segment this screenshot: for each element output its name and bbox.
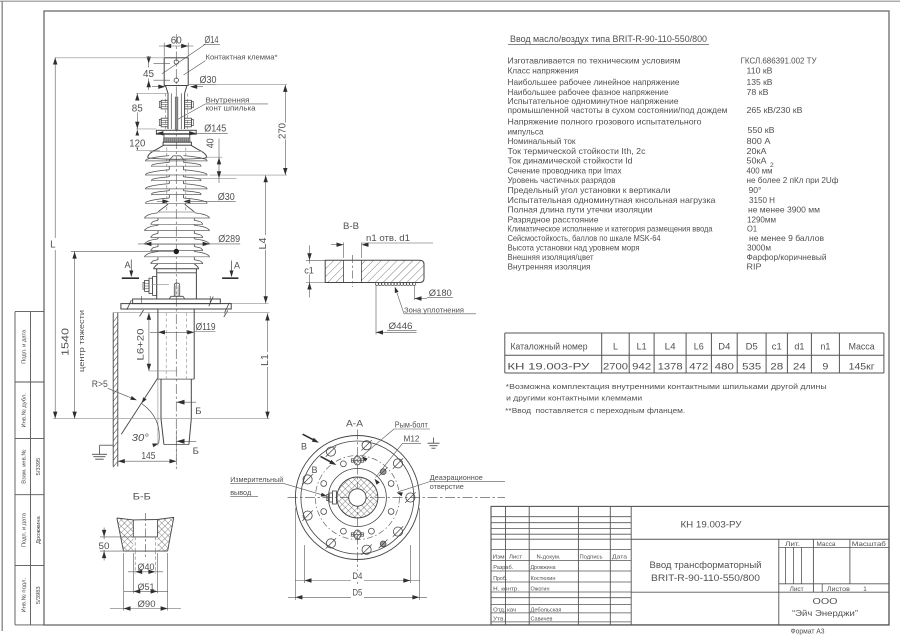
svg-text:Н. контр.: Н. контр. bbox=[493, 586, 519, 592]
svg-text:Разрядное расстояние: Разрядное расстояние bbox=[508, 215, 599, 224]
svg-text:120: 120 bbox=[129, 139, 146, 150]
svg-text:5/3395: 5/3395 bbox=[36, 458, 42, 476]
svg-text:отверстие: отверстие bbox=[430, 482, 464, 491]
svg-text:3150 Н: 3150 Н bbox=[749, 196, 775, 205]
svg-text:1: 1 bbox=[863, 586, 867, 593]
svg-text:КН 19.003-РУ: КН 19.003-РУ bbox=[681, 520, 742, 530]
svg-text:L: L bbox=[613, 342, 618, 352]
svg-text:265 кВ/230 кВ: 265 кВ/230 кВ bbox=[747, 106, 804, 115]
svg-text:Наибольшее рабочее линейное на: Наибольшее рабочее линейное напряжение bbox=[508, 78, 680, 87]
svg-text:Ø289: Ø289 bbox=[218, 234, 240, 245]
svg-text:n1: n1 bbox=[820, 342, 830, 352]
svg-text:535: 535 bbox=[742, 362, 761, 372]
svg-text:D5: D5 bbox=[746, 342, 758, 352]
svg-text:Ø145: Ø145 bbox=[204, 123, 227, 134]
svg-text:BRIT-R-90-110-550/800: BRIT-R-90-110-550/800 bbox=[651, 573, 760, 583]
svg-text:50: 50 bbox=[99, 541, 110, 552]
svg-text:Савичев: Савичев bbox=[531, 617, 553, 623]
svg-text:800 А: 800 А bbox=[747, 137, 772, 146]
svg-text:ООО: ООО bbox=[813, 596, 838, 606]
svg-text:270: 270 bbox=[278, 122, 289, 139]
svg-text:Ø40: Ø40 bbox=[138, 562, 155, 573]
svg-text:Сейсмостойкость, баллов по шка: Сейсмостойкость, баллов по шкале MSK-64 bbox=[508, 234, 661, 243]
svg-text:Ø30: Ø30 bbox=[218, 192, 235, 203]
svg-text:9: 9 bbox=[822, 362, 828, 372]
svg-text:Испытательное одноминутное нап: Испытательное одноминутное напряжение bbox=[508, 97, 679, 106]
svg-text:Ø51: Ø51 bbox=[138, 582, 155, 593]
svg-text:*Возможна комплектация внутрен: *Возможна комплектация внутренними конта… bbox=[506, 382, 827, 391]
svg-text:Ввод трансформаторный: Ввод трансформаторный bbox=[650, 560, 762, 570]
svg-text:50кА: 50кА bbox=[747, 157, 768, 166]
svg-text:d1: d1 bbox=[794, 342, 804, 352]
svg-text:Дрожжина: Дрожжина bbox=[531, 565, 557, 571]
svg-text:Изм: Изм bbox=[493, 554, 505, 560]
svg-text:L: L bbox=[50, 240, 56, 251]
svg-text:Инв.№ дубл.: Инв.№ дубл. bbox=[22, 393, 28, 428]
svg-text:Костюхин: Костюхин bbox=[531, 576, 556, 582]
svg-text:D5: D5 bbox=[352, 588, 362, 598]
svg-text:Ø119: Ø119 bbox=[196, 322, 216, 333]
svg-text:Лист: Лист bbox=[790, 586, 804, 593]
svg-text:L6+20: L6+20 bbox=[136, 328, 146, 360]
svg-text:Лист: Лист bbox=[509, 554, 522, 560]
svg-text:145: 145 bbox=[141, 451, 155, 462]
svg-text:Ø180: Ø180 bbox=[429, 288, 452, 299]
svg-text:**Ввод поставляется с переход: **Ввод поставляется с переходным фланцем… bbox=[505, 406, 685, 415]
svg-text:В-В: В-В bbox=[343, 221, 359, 232]
svg-text:Наибольшее рабочее фазное напр: Наибольшее рабочее фазное напряжение bbox=[508, 88, 669, 97]
svg-text:не менее 9 баллов: не менее 9 баллов bbox=[749, 234, 824, 243]
svg-text:Испытательная одноминутная кнс: Испытательная одноминутная кнсольная наг… bbox=[508, 196, 716, 205]
svg-text:Формат А3: Формат А3 bbox=[791, 628, 825, 635]
svg-text:Фарфор/коричневый: Фарфор/коричневый bbox=[747, 253, 827, 262]
svg-text:КН 19.003-РУ: КН 19.003-РУ bbox=[507, 362, 590, 372]
svg-text:L6: L6 bbox=[694, 342, 704, 352]
svg-text:R>5: R>5 bbox=[92, 379, 108, 390]
svg-text:Масштаб: Масштаб bbox=[852, 541, 887, 548]
svg-text:Изготавливается по техническим: Изготавливается по техническим условиям bbox=[508, 57, 681, 66]
svg-text:Утв.: Утв. bbox=[493, 617, 505, 623]
svg-text:550 кВ: 550 кВ bbox=[748, 126, 776, 135]
svg-text:Б: Б bbox=[193, 446, 199, 457]
svg-text:Дрожжина: Дрожжина bbox=[36, 515, 42, 544]
svg-text:Б: Б bbox=[195, 406, 201, 417]
svg-text:90°: 90° bbox=[749, 186, 762, 195]
svg-text:3000м: 3000м bbox=[747, 244, 771, 253]
svg-text:не менее 3900 мм: не менее 3900 мм bbox=[748, 206, 820, 215]
svg-text:30°: 30° bbox=[132, 433, 149, 444]
svg-text:2: 2 bbox=[770, 162, 774, 169]
svg-text:n1 отв. d1: n1 отв. d1 bbox=[366, 233, 410, 243]
svg-text:Класс напряжения: Класс напряжения bbox=[508, 66, 579, 75]
svg-text:400 мм: 400 мм bbox=[747, 166, 773, 175]
svg-text:28: 28 bbox=[770, 362, 783, 372]
svg-text:Ø446: Ø446 bbox=[389, 321, 413, 332]
svg-text:Подп. и дата: Подп. и дата bbox=[22, 329, 28, 364]
svg-text:L1: L1 bbox=[260, 354, 271, 366]
svg-text:Внешняя изоляция/цвет: Внешняя изоляция/цвет bbox=[508, 253, 594, 262]
svg-text:центр тяжести: центр тяжести bbox=[77, 310, 86, 372]
svg-text:Ток термической стойкости Ith,: Ток термической стойкости Ith, 2с bbox=[508, 147, 646, 156]
svg-text:“Эйч Энерджи”: “Эйч Энерджи” bbox=[792, 608, 858, 618]
svg-text:А: А bbox=[234, 261, 240, 271]
svg-text:Листов: Листов bbox=[827, 586, 851, 593]
svg-text:Дебольская: Дебольская bbox=[531, 607, 562, 613]
svg-text:1540: 1540 bbox=[61, 327, 72, 356]
svg-text:Масса: Масса bbox=[849, 342, 875, 352]
svg-text:2700: 2700 bbox=[603, 362, 628, 372]
svg-text:Уровень частичных разрядов: Уровень частичных разрядов bbox=[508, 176, 616, 185]
svg-text:Рым-болт: Рым-болт bbox=[395, 420, 428, 429]
svg-text:20кА: 20кА bbox=[747, 147, 768, 156]
svg-text:60: 60 bbox=[171, 36, 183, 47]
svg-text:Б-Б: Б-Б bbox=[133, 491, 151, 502]
svg-text:Ток динамической стойкости Id: Ток динамической стойкости Id bbox=[508, 157, 633, 166]
svg-text:24: 24 bbox=[793, 362, 806, 372]
svg-text:40: 40 bbox=[205, 138, 216, 148]
svg-text:промышленной частоты в сухом с: промышленной частоты в сухом состоянии/п… bbox=[508, 106, 728, 115]
svg-text:М12: М12 bbox=[404, 434, 420, 444]
svg-text:О1: О1 bbox=[747, 225, 757, 234]
svg-text:Ø14: Ø14 bbox=[205, 35, 219, 46]
svg-text:5/3983: 5/3983 bbox=[36, 586, 42, 604]
svg-text:А: А bbox=[125, 260, 131, 270]
svg-text:D4: D4 bbox=[352, 571, 362, 581]
svg-text:Предельный угол установки к ве: Предельный угол установки к вертикали bbox=[508, 186, 671, 195]
svg-text:Проб.: Проб. bbox=[493, 576, 507, 582]
svg-text:RIP: RIP bbox=[747, 263, 763, 272]
svg-text:L4: L4 bbox=[258, 237, 269, 250]
svg-text:135 кВ: 135 кВ bbox=[747, 78, 774, 87]
svg-text:и другими контактными клеммами: и другими контактными клеммами bbox=[506, 394, 642, 403]
svg-text:В: В bbox=[301, 442, 307, 452]
svg-text:Ожогин: Ожогин bbox=[531, 586, 550, 592]
svg-text:480: 480 bbox=[715, 362, 734, 372]
svg-text:Лит.: Лит. bbox=[785, 541, 800, 548]
svg-text:Высота установки над уровнем м: Высота установки над уровнем моря bbox=[508, 244, 640, 253]
svg-text:Дата: Дата bbox=[612, 554, 628, 560]
svg-text:N-докум.: N-докум. bbox=[537, 554, 561, 560]
svg-text:ГКСЛ.686391.002 ТУ: ГКСЛ.686391.002 ТУ bbox=[741, 57, 818, 66]
svg-text:Отд. кач: Отд. кач bbox=[493, 607, 516, 613]
svg-text:Разраб.: Разраб. bbox=[493, 565, 513, 571]
svg-text:Зона уплотнения: Зона уплотнения bbox=[404, 305, 464, 314]
svg-text:472: 472 bbox=[689, 362, 708, 372]
svg-text:Подпись: Подпись bbox=[580, 554, 603, 560]
svg-text:L4: L4 bbox=[665, 342, 676, 352]
svg-text:Подп. и дата: Подп. и дата bbox=[22, 512, 28, 547]
svg-text:Деаэрационное: Деаэрационное bbox=[430, 473, 483, 482]
svg-text:не более 2 пКл при 2Uф: не более 2 пКл при 2Uф bbox=[747, 176, 839, 185]
svg-text:Ø90: Ø90 bbox=[138, 599, 156, 610]
svg-text:L1: L1 bbox=[637, 342, 647, 352]
svg-text:Внутренняя изоляция: Внутренняя изоляция bbox=[508, 263, 591, 272]
svg-text:Инв.№ подл.: Инв.№ подл. bbox=[22, 578, 28, 613]
svg-text:942: 942 bbox=[632, 362, 651, 372]
svg-text:D4: D4 bbox=[718, 342, 730, 352]
svg-text:импульса: импульса bbox=[508, 127, 544, 136]
svg-text:Ввод масло/воздух типа BRIT-R-: Ввод масло/воздух типа BRIT-R-90-110-550… bbox=[510, 34, 707, 44]
svg-text:Напряжение полного грозового и: Напряжение полного грозового испытательн… bbox=[508, 118, 702, 127]
svg-text:В: В bbox=[312, 465, 318, 475]
svg-text:Контактная клемма*: Контактная клемма* bbox=[206, 52, 278, 61]
svg-text:Измерительный: Измерительный bbox=[230, 475, 283, 484]
svg-text:Масса: Масса bbox=[817, 541, 837, 548]
svg-text:78 кВ: 78 кВ bbox=[747, 88, 770, 97]
svg-text:c1: c1 bbox=[772, 342, 782, 352]
svg-text:85: 85 bbox=[132, 104, 144, 115]
svg-text:110 кВ: 110 кВ bbox=[747, 66, 774, 75]
svg-text:вывод: вывод bbox=[230, 488, 252, 497]
svg-text:Номинальный ток: Номинальный ток bbox=[508, 137, 576, 146]
svg-text:А-А: А-А bbox=[346, 419, 364, 430]
svg-text:Климатическое исполнение и кат: Климатическое исполнение и категория раз… bbox=[508, 225, 713, 234]
svg-text:145кг: 145кг bbox=[849, 362, 875, 372]
svg-text:Взам. инв.№: Взам. инв.№ bbox=[22, 449, 28, 483]
svg-text:конт шпилька: конт шпилька bbox=[206, 104, 256, 113]
svg-text:Сечение проводника при Imax: Сечение проводника при Imax bbox=[508, 166, 622, 175]
svg-text:1290мм: 1290мм bbox=[747, 215, 776, 224]
svg-text:Каталожный номер: Каталожный номер bbox=[511, 342, 588, 352]
svg-text:1378: 1378 bbox=[658, 362, 683, 372]
svg-text:45: 45 bbox=[143, 69, 155, 80]
svg-text:c1: c1 bbox=[304, 265, 314, 275]
svg-text:Полная длина пути утечки изоля: Полная длина пути утечки изоляции bbox=[508, 206, 653, 215]
